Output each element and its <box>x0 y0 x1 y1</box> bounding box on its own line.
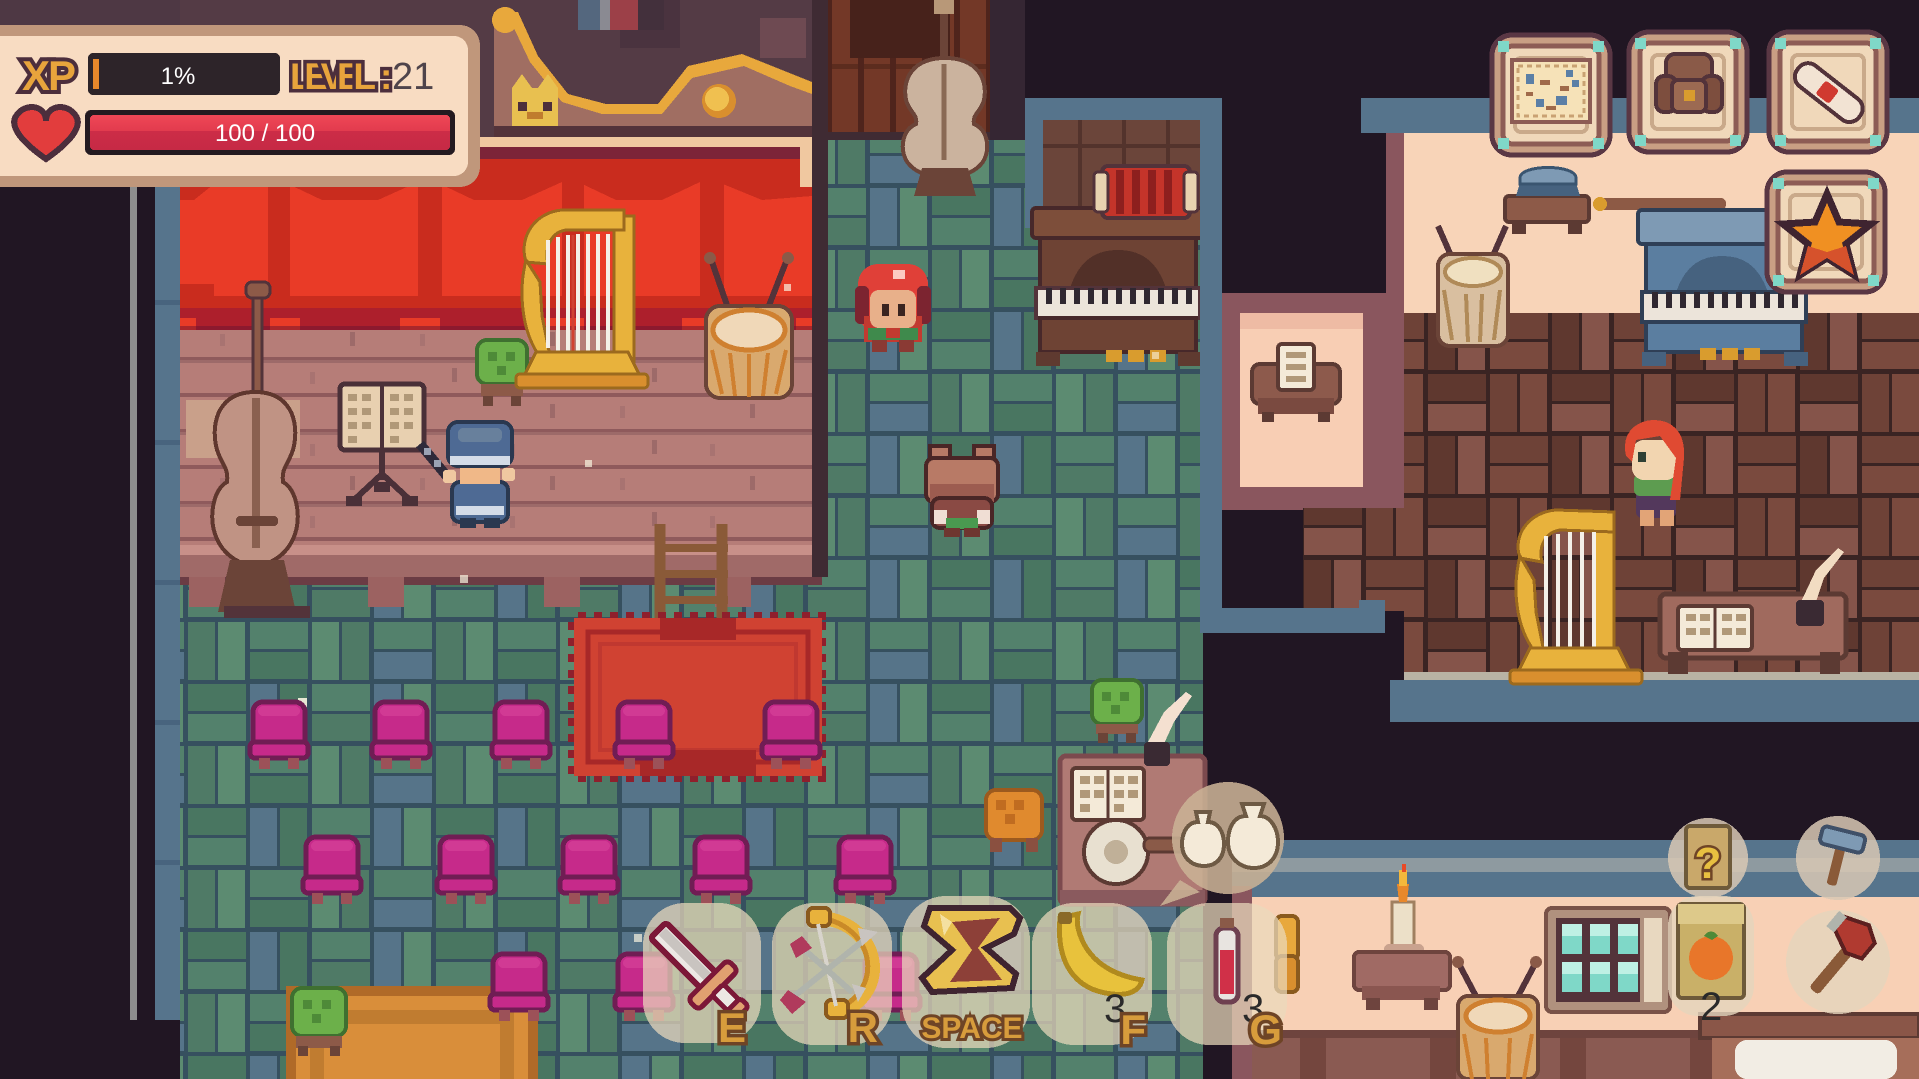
svg-text:2: 2 <box>1700 985 1722 1029</box>
svg-text:21: 21 <box>392 56 434 98</box>
svg-text:100 / 100: 100 / 100 <box>215 120 315 147</box>
svg-text:1%: 1% <box>161 63 196 90</box>
svg-text:?: ? <box>1695 839 1722 888</box>
svg-text:XP: XP <box>22 52 75 99</box>
svg-text:SPACE: SPACE <box>921 1012 1022 1045</box>
svg-text:G: G <box>1249 1006 1282 1053</box>
svg-text:F: F <box>1120 1006 1146 1053</box>
svg-text:LEVEL: LEVEL <box>290 56 375 97</box>
svg-text::: : <box>380 56 392 97</box>
svg-text:R: R <box>848 1004 878 1051</box>
svg-text:E: E <box>718 1004 746 1051</box>
